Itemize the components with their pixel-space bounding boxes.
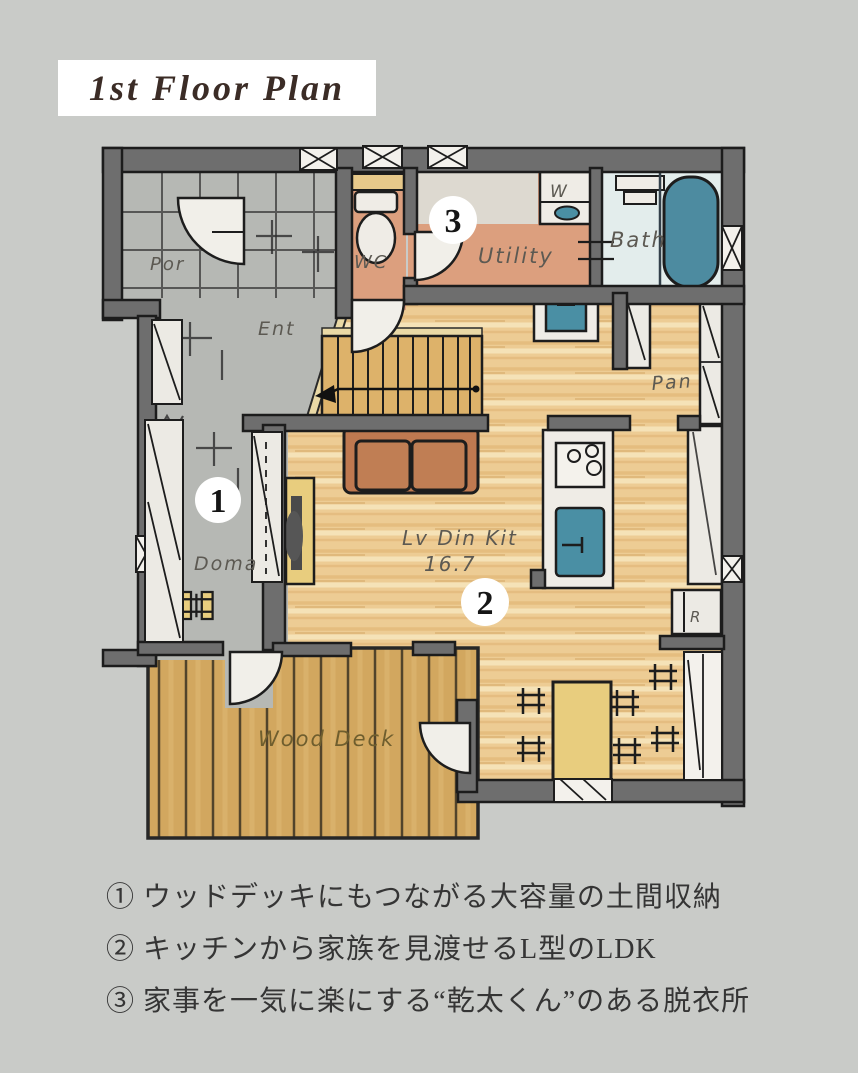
wall-wc-left	[336, 168, 352, 318]
marker-2: 2	[461, 578, 509, 626]
note-1: ① ウッドデッキにもつながる大容量の土間収納	[106, 872, 786, 924]
wall-deck-top-b	[273, 643, 351, 656]
cupboard-counter	[688, 426, 722, 584]
label-bath: Bath	[610, 228, 667, 252]
wall-kitchen-stub-a	[548, 416, 630, 430]
notes-list: ① ウッドデッキにもつながる大容量の土間収納 ② キッチンから家族を見渡せるL型…	[106, 872, 786, 1028]
label-wood-deck: Wood Deck	[258, 727, 395, 751]
wall-left-upper	[103, 148, 122, 320]
marker-3: 3	[429, 196, 477, 244]
label-washer: W	[550, 182, 569, 202]
cooktop	[556, 443, 604, 487]
marker-3-number: 3	[445, 203, 462, 240]
wall-pantry-stub	[613, 293, 627, 369]
label-doma: Doma	[194, 553, 258, 575]
wall-kitchen-stub-b	[678, 416, 700, 430]
label-utility: Utility	[478, 244, 554, 268]
note-2: ② キッチンから家族を見渡せるL型のLDK	[106, 924, 786, 976]
label-entrance: Ent	[258, 318, 296, 340]
note-3: ③ 家事を一気に楽にする“乾太くん”のある脱衣所	[106, 976, 786, 1028]
wall-fridge-stub	[660, 636, 724, 649]
wall-wc-right-a	[404, 168, 417, 234]
doma-stool	[180, 592, 212, 619]
label-ldk: Lv Din Kit	[402, 526, 518, 550]
wall-deck-top-c	[413, 642, 455, 655]
label-refrigerator: R	[690, 608, 702, 626]
label-wc: WC	[354, 252, 388, 273]
dining-table	[553, 682, 611, 782]
marker-1: 1	[195, 477, 241, 523]
stairs	[315, 328, 482, 418]
kitchen-sink	[556, 508, 604, 576]
wall-utility-bath	[590, 168, 602, 288]
wall-island-post	[531, 570, 545, 588]
sofa	[344, 427, 478, 493]
wall-top	[103, 148, 744, 172]
bathtub	[664, 177, 718, 287]
label-ldk-area: 16.7	[424, 552, 477, 576]
marker-2-number: 2	[477, 585, 494, 622]
label-pantry: Pan	[651, 370, 694, 395]
label-porch: Por	[150, 254, 185, 275]
marker-1-number: 1	[210, 483, 227, 520]
kitchen-island	[543, 430, 613, 588]
tv-board	[285, 478, 314, 584]
wall-utility-bath-bottom	[404, 286, 744, 304]
wall-deck-top-a	[138, 642, 223, 655]
